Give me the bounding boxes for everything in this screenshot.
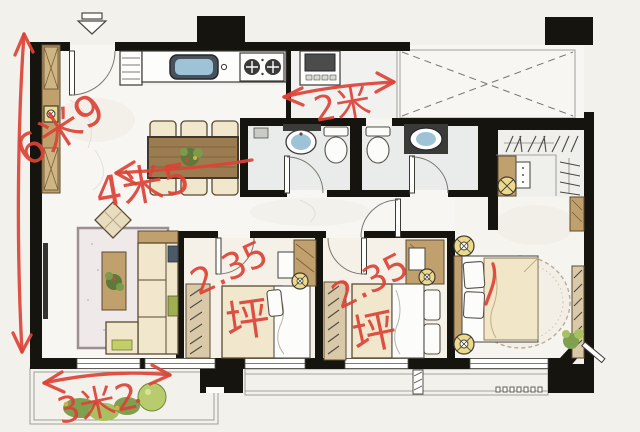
planter-ticks bbox=[496, 387, 542, 392]
pillow bbox=[463, 261, 485, 288]
entry-direction-arrow-icon bbox=[78, 13, 106, 34]
tv bbox=[43, 243, 48, 319]
drawer-unit bbox=[409, 248, 425, 270]
bathroom-1-door bbox=[285, 156, 290, 193]
coffee-table bbox=[102, 252, 126, 310]
stool-icon bbox=[498, 177, 516, 195]
washing-machine bbox=[300, 51, 340, 85]
nightstand bbox=[278, 252, 294, 278]
living-window bbox=[77, 359, 215, 369]
pillow bbox=[424, 290, 440, 320]
svg-text:坪: 坪 bbox=[222, 292, 273, 349]
toilet-icon bbox=[324, 127, 348, 163]
sofa-pillow bbox=[112, 340, 132, 350]
rear-balcony-strip bbox=[245, 369, 548, 395]
pillow bbox=[424, 324, 440, 354]
sofa-pillow bbox=[168, 296, 178, 316]
cooktop bbox=[240, 53, 284, 81]
bedside-lamp-icon bbox=[292, 273, 308, 289]
tall-cabinet bbox=[120, 51, 142, 85]
master-window bbox=[470, 359, 548, 369]
bedside-lamp-icon bbox=[419, 269, 435, 285]
toilet-icon bbox=[366, 127, 390, 163]
pillow bbox=[267, 289, 284, 316]
entrance-door bbox=[70, 51, 75, 95]
access-ladder-icon bbox=[413, 370, 423, 394]
bathroom-2-door bbox=[410, 156, 415, 193]
bedroom-1-window bbox=[245, 359, 305, 369]
bedside-lamp-icon bbox=[454, 334, 474, 354]
sofa-pillow bbox=[168, 246, 178, 262]
floor-plan-drawing: 6米9 4米5 2米 2.35 坪 2.35 坪 3米2 bbox=[0, 0, 640, 432]
pillow bbox=[463, 291, 484, 318]
bedside-lamp-icon bbox=[454, 236, 474, 256]
kitchen bbox=[120, 51, 286, 85]
floor-plan: 6米9 4米5 2米 2.35 坪 2.35 坪 3米2 bbox=[0, 0, 640, 432]
faucet-icon bbox=[221, 64, 226, 69]
bedroom-2-window bbox=[345, 359, 408, 369]
shelf-icon bbox=[254, 128, 268, 138]
dim-label: 3米2 bbox=[53, 376, 142, 432]
